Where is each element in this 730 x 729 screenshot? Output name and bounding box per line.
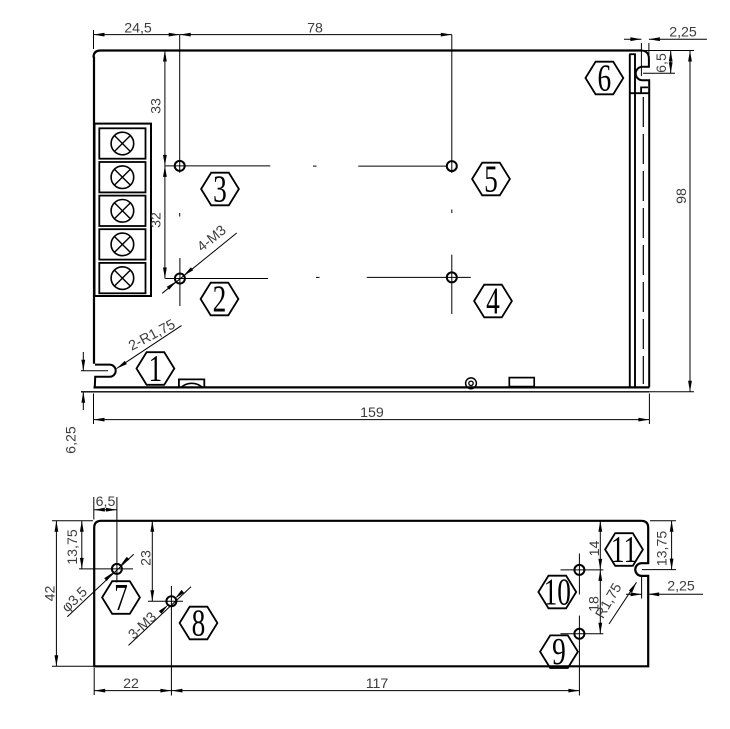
svg-text:32: 32 — [149, 212, 165, 228]
svg-text:6: 6 — [598, 57, 612, 99]
svg-text:11: 11 — [611, 529, 637, 571]
svg-text:78: 78 — [307, 21, 323, 37]
svg-text:98: 98 — [674, 188, 690, 204]
svg-text:22: 22 — [123, 676, 139, 692]
svg-text:4-M3: 4-M3 — [194, 222, 229, 255]
svg-text:φ3,5: φ3,5 — [59, 584, 91, 616]
svg-text:14: 14 — [587, 541, 603, 557]
svg-text:159: 159 — [360, 405, 384, 421]
svg-text:13,75: 13,75 — [655, 531, 671, 567]
svg-text:9: 9 — [552, 631, 566, 673]
svg-text:2: 2 — [213, 278, 227, 320]
svg-text:42: 42 — [43, 586, 59, 602]
svg-text:5: 5 — [484, 158, 498, 200]
svg-text:3-M3: 3-M3 — [125, 609, 160, 643]
svg-text:6,5: 6,5 — [96, 494, 116, 510]
svg-text:2,25: 2,25 — [669, 24, 697, 40]
svg-text:13,75: 13,75 — [65, 529, 81, 565]
svg-text:1: 1 — [149, 348, 163, 390]
svg-text:6,25: 6,25 — [64, 426, 80, 454]
svg-text:10: 10 — [544, 571, 571, 613]
svg-text:3: 3 — [213, 168, 227, 210]
svg-text:117: 117 — [366, 676, 389, 692]
svg-text:8: 8 — [192, 602, 206, 644]
svg-text:7: 7 — [114, 577, 128, 619]
svg-text:6,5: 6,5 — [654, 53, 670, 73]
svg-text:23: 23 — [139, 550, 155, 566]
svg-text:4: 4 — [486, 280, 500, 322]
svg-text:2,25: 2,25 — [667, 579, 695, 595]
svg-text:33: 33 — [149, 98, 165, 114]
svg-text:24,5: 24,5 — [124, 21, 152, 37]
